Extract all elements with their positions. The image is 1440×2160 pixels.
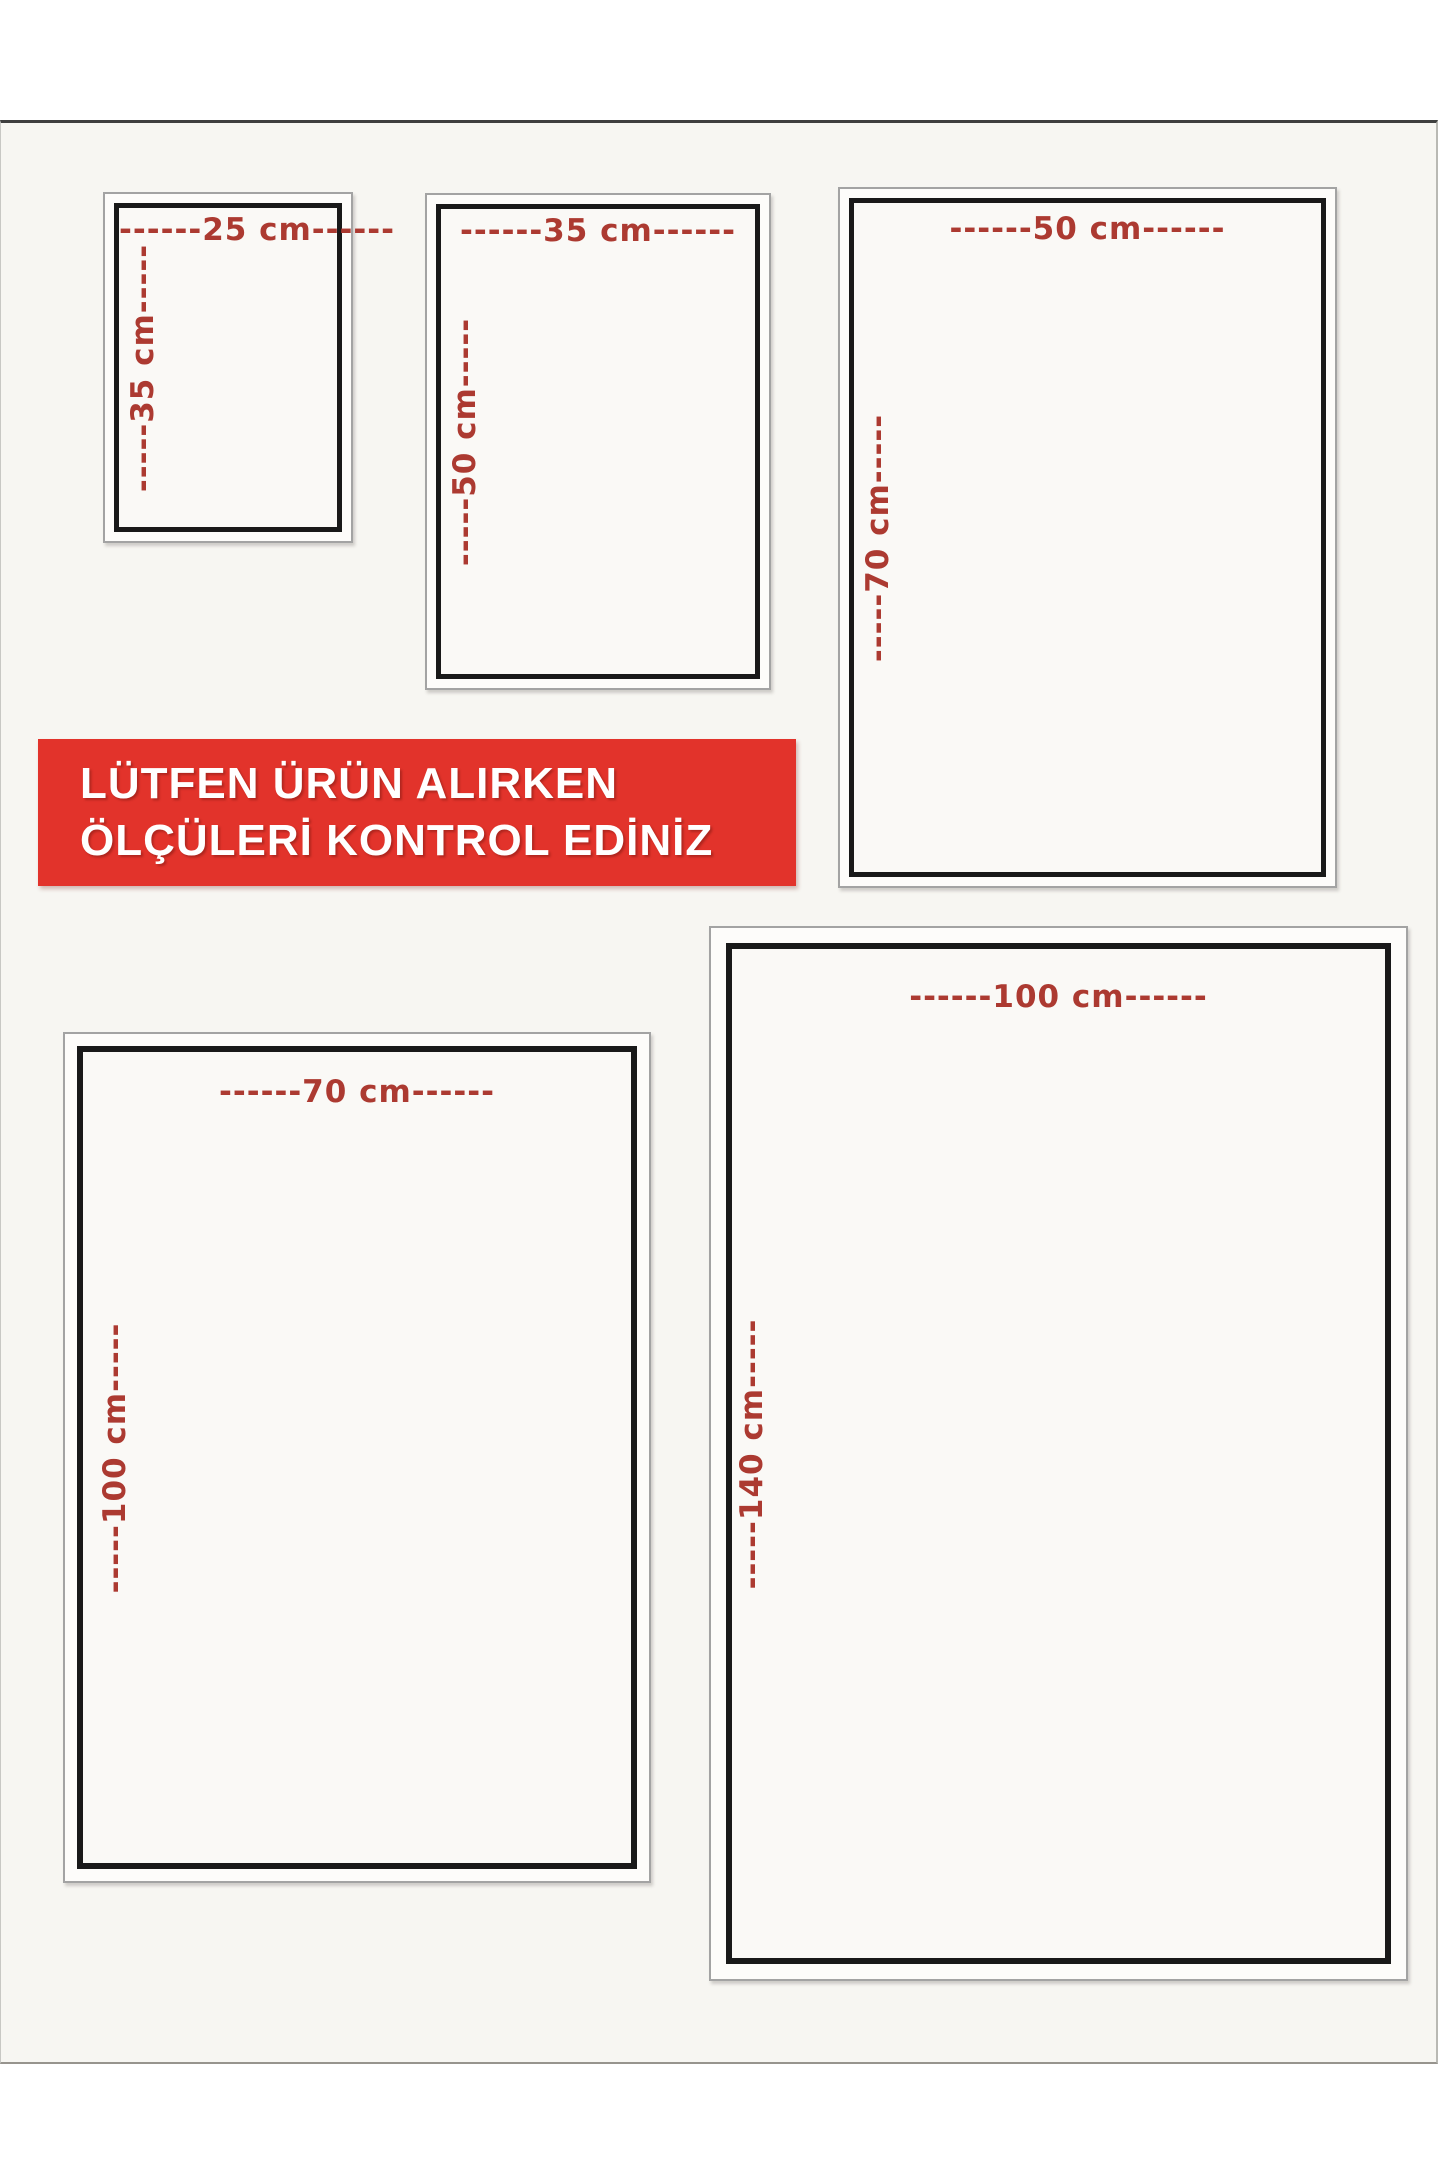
- size-box-50x70: ------50 cm------ -----70 cm-----: [849, 198, 1326, 877]
- width-dimension-label: ------25 cm------: [119, 212, 337, 248]
- size-box-50x70-frame: ------50 cm------ -----70 cm-----: [838, 187, 1337, 888]
- width-dimension-label: ------35 cm------: [441, 213, 755, 249]
- height-dimension-label: -----35 cm-----: [125, 243, 161, 491]
- height-dimension-label: -----100 cm-----: [97, 1322, 133, 1593]
- width-dimension-label: ------70 cm------: [83, 1074, 631, 1110]
- size-box-35x50-frame: ------35 cm------ -----50 cm-----: [425, 193, 771, 690]
- size-box-70x100: ------70 cm------ -----100 cm-----: [77, 1046, 637, 1869]
- banner-text-line2: ÖLÇÜLERİ KONTROL EDİNİZ: [80, 817, 796, 865]
- size-box-70x100-frame: ------70 cm------ -----100 cm-----: [63, 1032, 651, 1883]
- size-box-100x140: ------100 cm------ -----140 cm-----: [726, 943, 1391, 1964]
- height-dimension-label: -----70 cm-----: [860, 413, 896, 661]
- size-guide-image: ------25 cm------ -----35 cm----- ------…: [0, 0, 1440, 2160]
- size-box-25x35: ------25 cm------ -----35 cm-----: [114, 203, 342, 532]
- banner-text-line1: LÜTFEN ÜRÜN ALIRKEN: [80, 760, 796, 808]
- height-dimension-label: -----140 cm-----: [734, 1318, 770, 1589]
- height-dimension-label: -----50 cm-----: [447, 317, 483, 565]
- size-warning-banner: LÜTFEN ÜRÜN ALIRKEN ÖLÇÜLERİ KONTROL EDİ…: [38, 739, 796, 886]
- width-dimension-label: ------50 cm------: [854, 211, 1321, 247]
- width-dimension-label: ------100 cm------: [732, 979, 1385, 1015]
- size-box-100x140-frame: ------100 cm------ -----140 cm-----: [709, 926, 1408, 1981]
- size-box-25x35-frame: ------25 cm------ -----35 cm-----: [103, 192, 353, 543]
- size-box-35x50: ------35 cm------ -----50 cm-----: [436, 204, 760, 679]
